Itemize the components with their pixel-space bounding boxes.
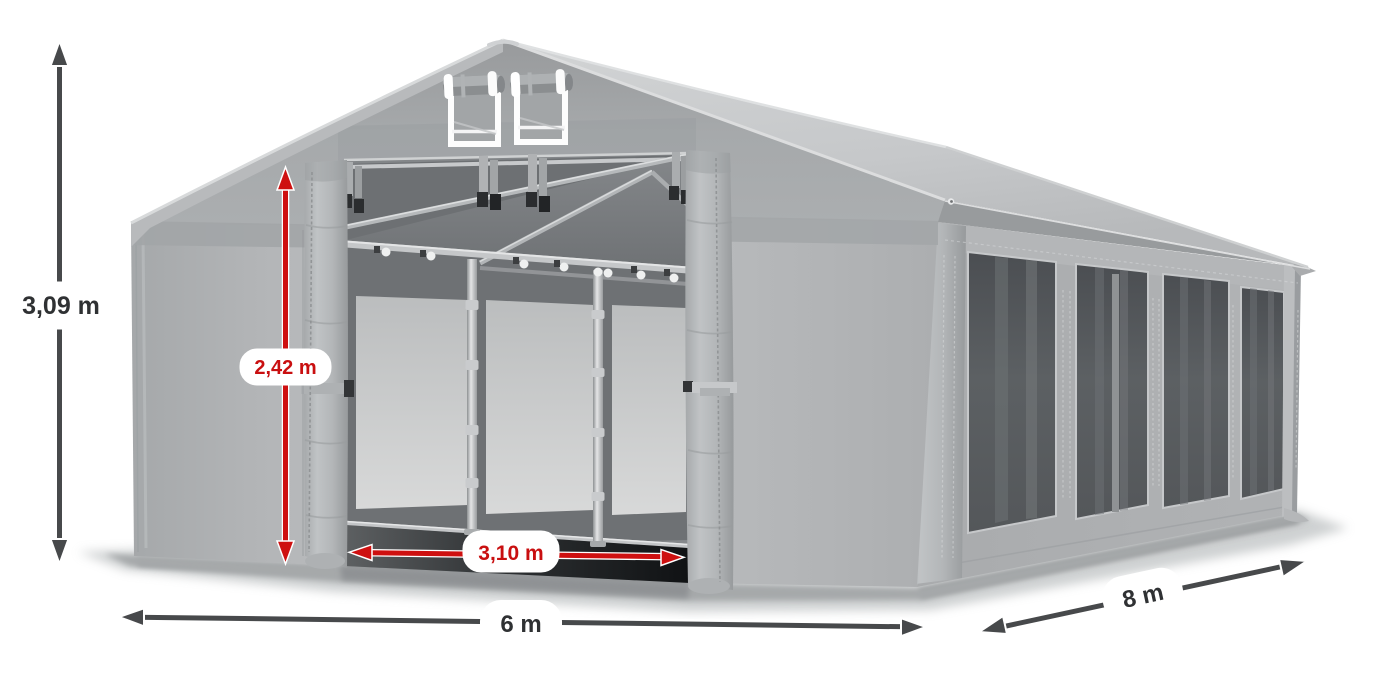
svg-text:3,10 m: 3,10 m: [478, 542, 543, 565]
svg-text:6 m: 6 m: [500, 611, 541, 638]
svg-text:2,42 m: 2,42 m: [254, 357, 316, 379]
svg-text:3,09 m: 3,09 m: [22, 292, 100, 320]
